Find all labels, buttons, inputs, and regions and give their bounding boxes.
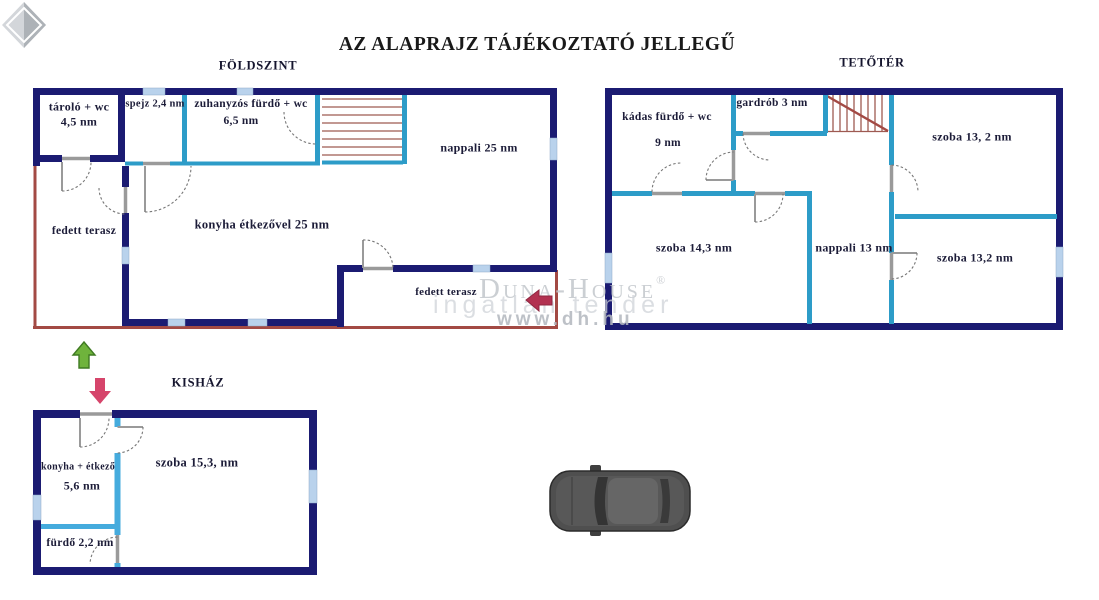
floorplan-drawing [0,0,1099,600]
windows [33,470,317,520]
walls-navy [33,88,557,327]
doors [652,134,918,281]
red-down-arrow-icon [89,378,111,404]
doors [62,112,393,269]
kishaz-plan [33,410,317,575]
walls-partition [612,95,1057,324]
terrace-edges [33,166,558,329]
windows [605,247,1063,283]
car-top-view [550,465,690,536]
stairs-foldszint-icon [322,99,403,155]
foldszint-plan [33,88,558,329]
stairs-tetoter-icon [827,95,888,132]
tetoter-plan [605,88,1063,330]
level-link-arrows [73,342,111,404]
walls-navy [605,88,1063,330]
doors [80,414,143,564]
floorplan-image: AZ ALAPRAJZ TÁJÉKOZTATÓ JELLEGŰ FÖLDSZIN… [0,0,1099,600]
green-up-arrow-icon [73,342,95,368]
walls-navy [33,410,317,575]
walls-partition [125,95,405,164]
